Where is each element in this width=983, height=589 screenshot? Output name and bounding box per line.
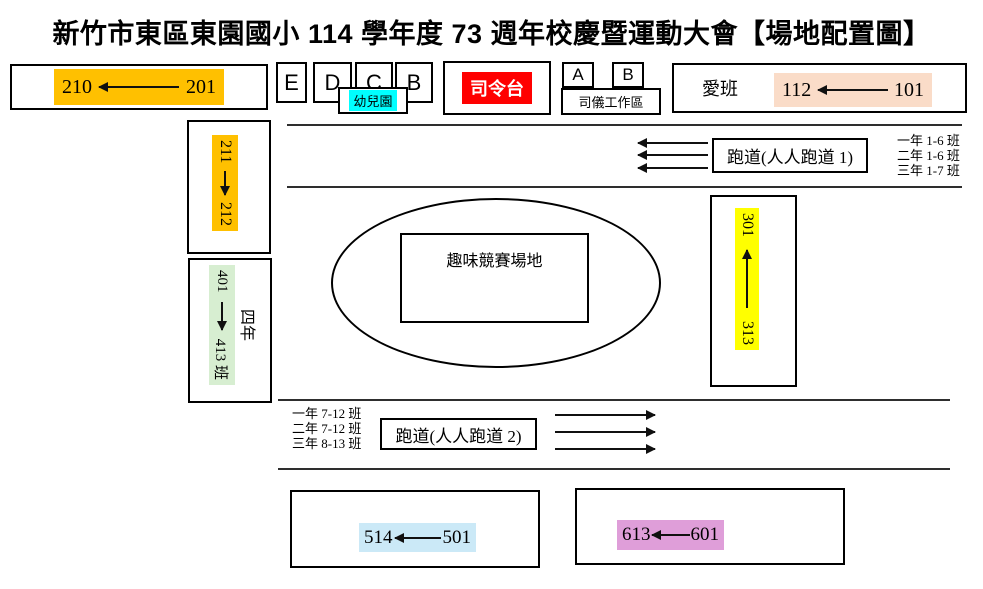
arrow-up-icon: [746, 250, 748, 308]
range-start: 313: [738, 321, 756, 345]
kindergarten-label: 幼兒園: [349, 90, 396, 111]
class-line: 二年 7-12 班: [292, 421, 361, 436]
kindergarten-box: 幼兒園: [338, 87, 408, 114]
arrow-left-icon: [638, 167, 708, 169]
stage-label: 司令台: [462, 72, 532, 104]
class-line: 一年 7-12 班: [292, 406, 361, 421]
range-end: 212: [216, 202, 234, 226]
arrow-right-icon: [555, 431, 655, 433]
range-chip-112-101: 112 101: [774, 73, 932, 107]
arrow-right-icon: [555, 414, 655, 416]
class-line: 二年 1-6 班: [897, 148, 960, 163]
stand-letter: B: [407, 70, 422, 96]
love-class-label: 愛班: [702, 75, 738, 101]
range-strip-401-413: 401 413 班: [209, 265, 235, 385]
range-start: 601: [691, 524, 720, 546]
range-start: 501: [443, 527, 472, 549]
track1-label-box: 跑道(人人跑道 1): [712, 138, 868, 173]
track2-top-line: [278, 399, 950, 401]
track2-label-box: 跑道(人人跑道 2): [380, 418, 537, 450]
range-start: 101: [894, 79, 924, 102]
stand-letter: B: [622, 65, 633, 85]
range-end: 613: [622, 524, 651, 546]
range-start: 211: [216, 140, 234, 163]
track2-bottom-line: [278, 468, 950, 470]
seating-box-grade5: 514 501: [290, 490, 540, 568]
seating-box-grade6: 613 601: [575, 488, 845, 565]
track1-bottom-line: [287, 186, 962, 188]
arrow-down-icon: [221, 302, 223, 330]
seating-box-grade1: 愛班 112 101: [672, 63, 967, 113]
arrow-right-icon: [555, 448, 655, 450]
range-chip-210-201: 210 201: [54, 69, 224, 105]
stand-box-b2: B: [612, 62, 644, 88]
stand-box-a2: A: [562, 62, 594, 88]
range-end: 514: [364, 527, 393, 549]
stand-letter: E: [284, 70, 299, 96]
range-end: 301: [738, 213, 756, 237]
stand-box-e: E: [276, 62, 307, 103]
arrow-left-icon: [638, 154, 708, 156]
track2-classes: 一年 7-12 班 二年 7-12 班 三年 8-13 班: [292, 406, 361, 451]
grade4-side-label: 四年: [239, 305, 259, 345]
stage-box: 司令台: [443, 61, 551, 115]
range-strip-301-313: 301 313: [735, 208, 759, 350]
range-chip-514-501: 514 501: [359, 523, 476, 552]
arrow-left-icon: [99, 86, 179, 88]
announcer-area-box: 司儀工作區: [561, 88, 661, 115]
arrow-left-icon: [818, 89, 888, 91]
range-chip-613-601: 613 601: [617, 520, 724, 550]
track1-top-line: [287, 124, 962, 126]
venue-layout-diagram: 新竹市東區東園國小 114 學年度 73 週年校慶暨運動大會【場地配置圖】 21…: [0, 0, 983, 589]
arrow-left-icon: [652, 534, 690, 536]
arrow-down-icon: [224, 171, 226, 195]
fun-contest-area-box: 趣味競賽場地: [400, 233, 589, 323]
range-start: 201: [186, 76, 216, 99]
arrow-left-icon: [395, 537, 441, 539]
range-strip-211-212: 211 212: [212, 135, 238, 231]
stand-letter: A: [572, 65, 583, 85]
range-end: 112: [782, 79, 811, 102]
range-start: 401: [214, 270, 231, 293]
track1-classes: 一年 1-6 班 二年 1-6 班 三年 1-7 班: [897, 133, 960, 178]
fun-contest-label: 趣味競賽場地: [446, 247, 542, 271]
announcer-area-label: 司儀工作區: [578, 92, 643, 111]
range-end: 413 班: [212, 339, 233, 380]
arrow-left-icon: [638, 142, 708, 144]
range-end: 210: [62, 76, 92, 99]
page-title: 新竹市東區東園國小 114 學年度 73 週年校慶暨運動大會【場地配置圖】: [0, 12, 983, 51]
class-line: 三年 8-13 班: [292, 436, 361, 451]
class-line: 三年 1-7 班: [897, 163, 960, 178]
seating-box-grade2-rear: 210 201: [10, 64, 268, 110]
class-line: 一年 1-6 班: [897, 133, 960, 148]
